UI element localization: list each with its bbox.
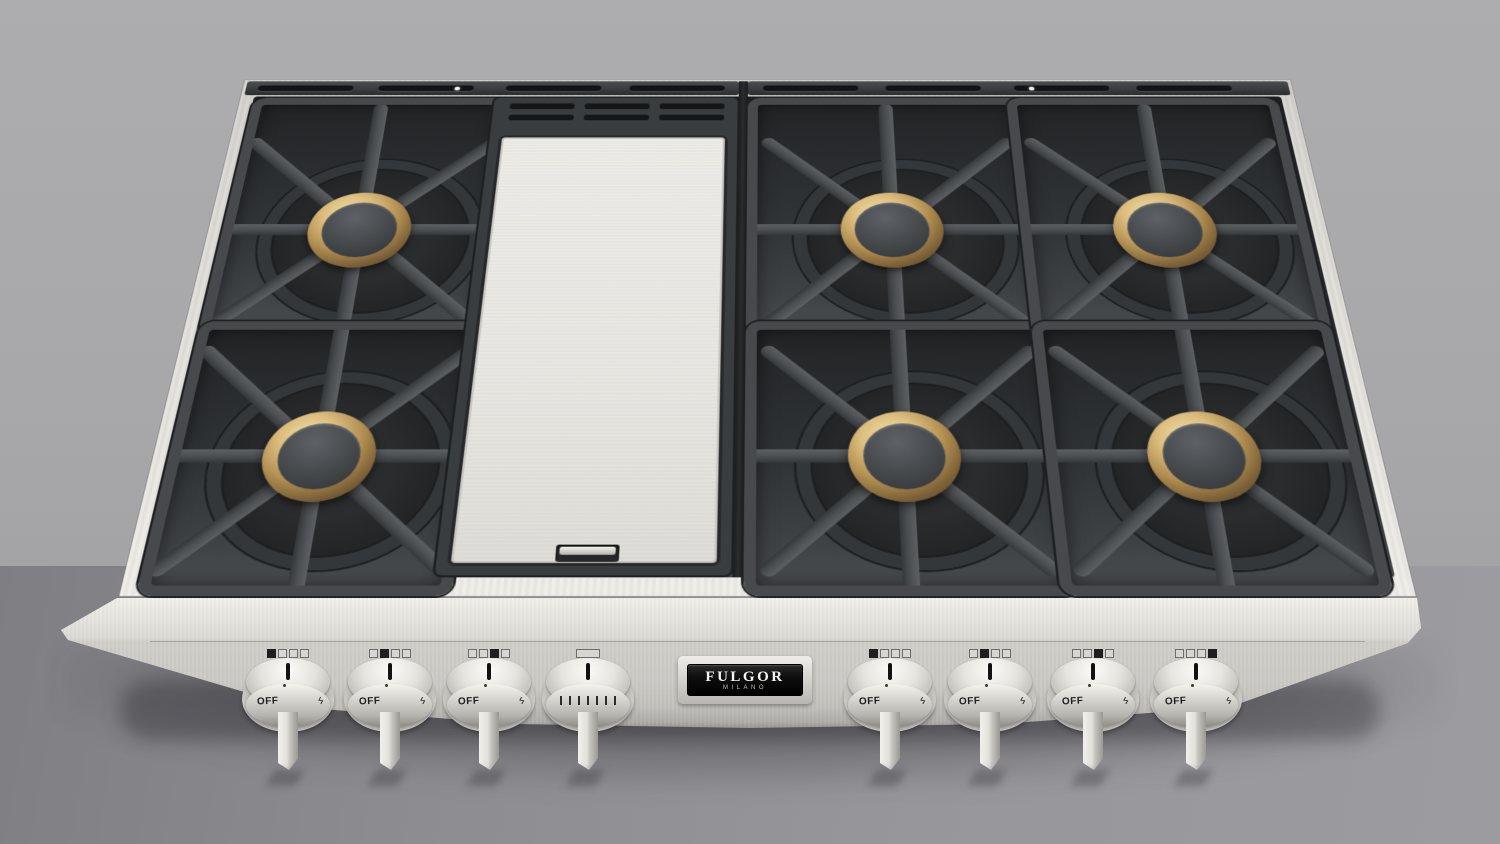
burner-position-icon <box>969 649 1011 658</box>
knob-handle[interactable] <box>578 712 598 770</box>
ignite-flame-icon: ϟ <box>317 696 324 708</box>
brand-badge: FULGOR MILANO <box>678 656 812 704</box>
brand-badge-screen: FULGOR MILANO <box>687 664 803 696</box>
knob-left-3[interactable]: OFF ϟ <box>443 658 535 778</box>
knob-handle[interactable] <box>479 712 499 770</box>
grate-right-rear <box>1006 98 1334 338</box>
knob-handle[interactable] <box>278 712 298 770</box>
knob-right-1[interactable]: OFF ϟ <box>844 658 936 778</box>
burner-position-icon <box>1175 649 1217 658</box>
griddle-cover <box>451 137 725 563</box>
knob-off-label: OFF <box>359 695 381 707</box>
knob-left-1[interactable]: OFF ϟ <box>242 658 334 778</box>
cooktop-top-surface <box>119 80 1415 596</box>
rear-vent-right <box>748 81 1291 95</box>
griddle-position-icon <box>576 649 600 658</box>
ignite-flame-icon: ϟ <box>518 696 525 708</box>
burner-position-icon <box>369 649 411 658</box>
rear-vent-left <box>244 81 739 95</box>
ignite-flame-icon: ϟ <box>1225 696 1232 708</box>
ignite-flame-icon: ϟ <box>419 696 426 708</box>
grate-left-front <box>135 321 484 596</box>
ignite-flame-icon: ϟ <box>1122 696 1129 708</box>
knob-handle[interactable] <box>980 712 1000 770</box>
knob-off-label: OFF <box>1062 695 1084 707</box>
knob-griddle[interactable] <box>542 658 634 778</box>
knob-off-label: OFF <box>458 695 480 707</box>
ignite-flame-icon: ϟ <box>1019 696 1026 708</box>
screw <box>1029 87 1034 90</box>
knob-off-label: OFF <box>959 695 981 707</box>
knob-off-label: OFF <box>257 695 279 707</box>
panel-seam <box>150 641 1365 642</box>
burner-position-icon <box>267 649 309 658</box>
knob-handle[interactable] <box>1186 712 1206 770</box>
grate-center-right-front <box>743 321 1080 596</box>
burner-position-icon <box>1072 649 1114 658</box>
grate-left-rear <box>197 98 511 338</box>
knob-right-2[interactable]: OFF ϟ <box>944 658 1036 778</box>
knob-right-4[interactable]: OFF ϟ <box>1150 658 1242 778</box>
knob-handle[interactable] <box>880 712 900 770</box>
knob-handle[interactable] <box>1083 712 1103 770</box>
knob-indicator-mark <box>286 663 290 680</box>
griddle-handle[interactable] <box>555 545 620 562</box>
knob-right-3[interactable]: OFF ϟ <box>1047 658 1139 778</box>
brand-sub-name: MILANO <box>723 685 767 691</box>
scene: FULGOR MILANO OFF ϟ OFF ϟ OFF ϟ <box>0 0 1500 844</box>
brand-name: FULGOR <box>705 670 784 684</box>
knob-handle[interactable] <box>380 712 400 770</box>
burner-position-icon <box>468 649 510 658</box>
knob-off-label: OFF <box>859 695 881 707</box>
burner-position-icon <box>869 649 911 658</box>
knob-left-2[interactable]: OFF ϟ <box>344 658 436 778</box>
grate-center-right-rear <box>746 98 1051 338</box>
ignite-flame-icon: ϟ <box>919 696 926 708</box>
knob-off-label: OFF <box>1165 695 1187 707</box>
griddle-dial-ticks <box>554 696 622 705</box>
